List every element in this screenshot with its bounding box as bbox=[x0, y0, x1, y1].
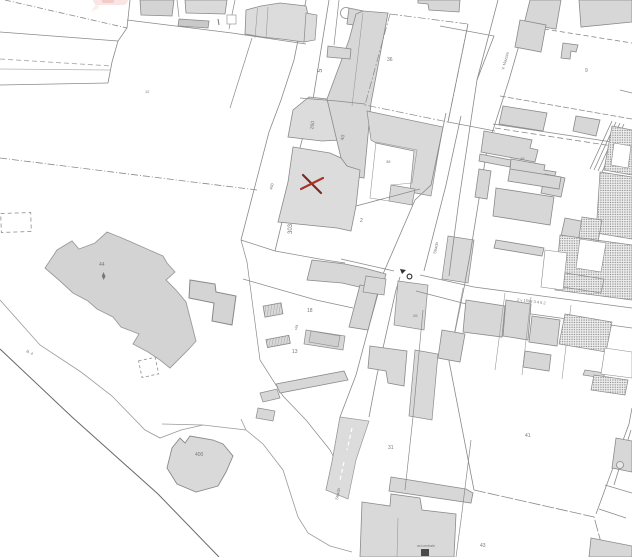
svg-text:44: 44 bbox=[99, 262, 105, 268]
svg-text:18: 18 bbox=[307, 308, 313, 314]
svg-text:asl centrale: asl centrale bbox=[417, 544, 435, 548]
svg-text:31: 31 bbox=[388, 445, 394, 451]
svg-text:38: 38 bbox=[386, 159, 391, 164]
svg-text:303: 303 bbox=[288, 223, 294, 234]
svg-text:400: 400 bbox=[195, 452, 204, 458]
svg-text:26: 26 bbox=[413, 313, 418, 318]
svg-text:43: 43 bbox=[480, 543, 486, 549]
svg-text:13: 13 bbox=[292, 349, 298, 355]
svg-text:9: 9 bbox=[585, 68, 588, 74]
svg-text:12: 12 bbox=[145, 89, 150, 94]
svg-text:45: 45 bbox=[520, 156, 525, 161]
svg-text:41: 41 bbox=[525, 433, 531, 439]
svg-text:36: 36 bbox=[387, 57, 393, 63]
svg-text:2: 2 bbox=[360, 218, 363, 224]
